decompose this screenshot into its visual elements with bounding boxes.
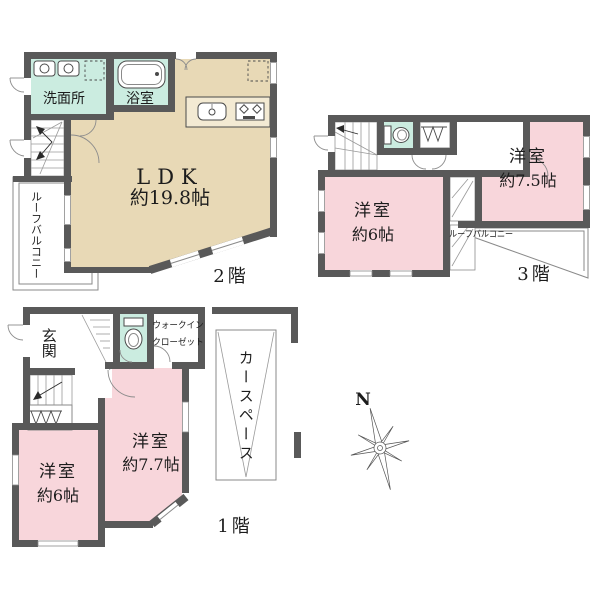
floor3-bedroom75-name: 洋室: [488, 149, 568, 167]
floor3-stairs: [335, 122, 377, 170]
floor2-washroom-label: 洗面所: [27, 92, 101, 107]
floor1-wic-label-line2: クローゼット: [150, 339, 205, 348]
floor1-car-space-label: カースペース: [237, 336, 253, 478]
floor1-label: 1階: [200, 518, 270, 537]
floor3-roof-balcony-label: ルーフバルコニー: [449, 231, 512, 240]
floor2-bathroom-label: 浴室: [111, 92, 169, 107]
floor3-bedroom6-name: 洋室: [333, 203, 413, 221]
floor3-label: 3階: [500, 266, 570, 285]
floor3-plan-drawing: [300, 110, 600, 290]
floor1-bedroom6-name: 洋室: [18, 464, 98, 482]
floor2-roof-balcony-label: ルーフバルコニー: [30, 184, 42, 286]
floor1-bedroom6-floor: [19, 430, 98, 540]
compass-rose: [330, 395, 430, 505]
compass-north-label: N: [348, 392, 378, 410]
floor1-stairs-upper: [82, 315, 110, 370]
compass-star: [341, 401, 420, 497]
floor1-bedroom6-size: 約6帖: [13, 488, 103, 505]
bathtub-icon: [118, 61, 165, 88]
floor2-ldk-name: LDK: [105, 166, 235, 188]
floor3-bedroom75-size: 約7.5帖: [483, 173, 573, 190]
floor-plan-sheet: LDK 約19.8帖 洗面所 浴室 ルーフバルコニー 2階 洋室 約7.5帖 洋…: [0, 0, 600, 600]
floor1-entrance-label: 玄関: [40, 317, 56, 369]
floor1-wic-label-line1: ウォークイン: [150, 322, 205, 331]
floor1-toilet: [120, 314, 147, 362]
floor3-bedroom6-size: 約6帖: [328, 227, 418, 244]
floor3-closet-hangers-icon: [420, 122, 450, 148]
floor2-ldk-size: 約19.8帖: [100, 189, 240, 209]
floor1-bedroom77-name: 洋室: [111, 434, 191, 452]
floor2-stairs: [31, 120, 64, 176]
floor1-bedroom77-size: 約7.7帖: [106, 457, 196, 474]
floor1-stairs-lower: [30, 375, 72, 405]
floor3-bedroom6-floor: [325, 177, 443, 270]
floor2-label: 2階: [196, 268, 266, 287]
